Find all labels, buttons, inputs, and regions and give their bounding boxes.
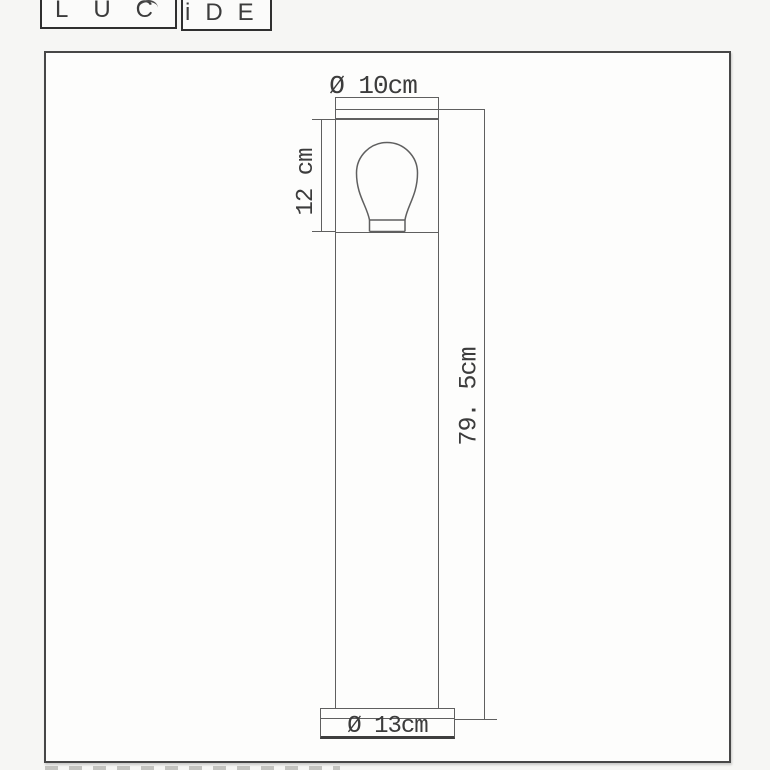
label-base-diameter: Ø 13cm [330,715,445,739]
cap-inner-line [335,109,485,110]
logo-box-right: iDE [181,0,272,31]
dim-tick-12cm-top [312,119,337,120]
lamp-pole [335,232,439,708]
logo-text-left: LUC [55,0,178,22]
dim-tick-12cm-bottom [312,231,336,232]
label-total-height: 79. 5cm [457,342,482,452]
label-head-height: 12 cm [295,142,319,222]
dim-line-12cm [321,120,322,233]
cut-off-caption-fragments [45,766,340,770]
product-dimension-sheet: LUC iDE Ø 10cm 12 cm 79. 5cm Ø 13cm [0,0,770,770]
dim-line-79-5cm [484,109,485,720]
light-bulb-icon [350,138,424,233]
dim-tick-79-5cm-bottom [455,719,497,720]
logo-text-right: iDE [185,1,269,25]
label-top-diameter: Ø 10cm [323,73,423,99]
